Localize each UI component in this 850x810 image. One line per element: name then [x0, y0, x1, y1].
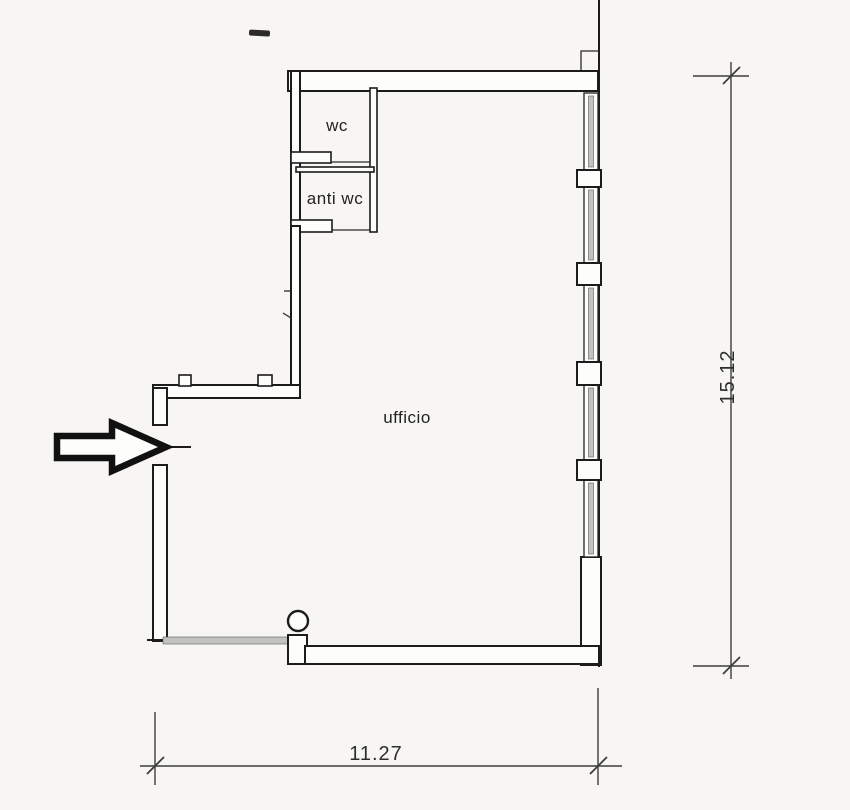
- window-glass: [589, 288, 594, 359]
- left-wall-upper: [291, 226, 300, 392]
- wall-joint-tick: [283, 313, 291, 318]
- top-wall: [288, 71, 598, 91]
- dimension-value-bottom: 11.27: [349, 743, 403, 765]
- wall-pillar: [577, 362, 601, 385]
- alcove-wall-above-door: [153, 388, 167, 425]
- floor-plan-svg: 15.12 11.27 wc anti wc ufficio: [0, 0, 850, 810]
- anti-wc-top-wall: [296, 167, 374, 172]
- right-wall-windows: [584, 93, 598, 557]
- wc-block-right-wall: [370, 88, 377, 232]
- window-glass: [589, 96, 594, 167]
- bottom-glazing-band: [163, 637, 288, 644]
- wall-pillar: [577, 263, 601, 285]
- wc-block-left-wall: [291, 71, 300, 230]
- dimension-right: 15.12: [693, 62, 749, 679]
- room-label-ufficio: ufficio: [383, 408, 431, 427]
- entrance-step-wall: [153, 385, 300, 398]
- window-glass: [589, 190, 594, 260]
- dimension-bottom: 11.27: [140, 688, 622, 785]
- window-glass: [589, 483, 594, 554]
- wall-pillar: [577, 460, 601, 480]
- round-column: [288, 611, 308, 631]
- step-wall-pilaster: [258, 375, 272, 386]
- bottom-wall: [305, 646, 599, 664]
- step-wall-pilaster: [179, 375, 191, 386]
- wc-bottom-wall: [291, 152, 331, 163]
- alcove-wall-below-door: [153, 465, 167, 641]
- wall-pillar: [577, 170, 601, 187]
- dimension-value-right: 15.12: [717, 349, 739, 404]
- entrance-arrow-icon: [57, 423, 166, 471]
- room-label-wc: wc: [325, 116, 348, 135]
- window-glass: [589, 388, 594, 457]
- room-label-anti-wc: anti wc: [307, 189, 363, 208]
- scan-artifact: [249, 29, 270, 36]
- floor-plan-scan: 15.12 11.27 wc anti wc ufficio: [0, 0, 850, 810]
- top-right-corner-step: [581, 51, 599, 71]
